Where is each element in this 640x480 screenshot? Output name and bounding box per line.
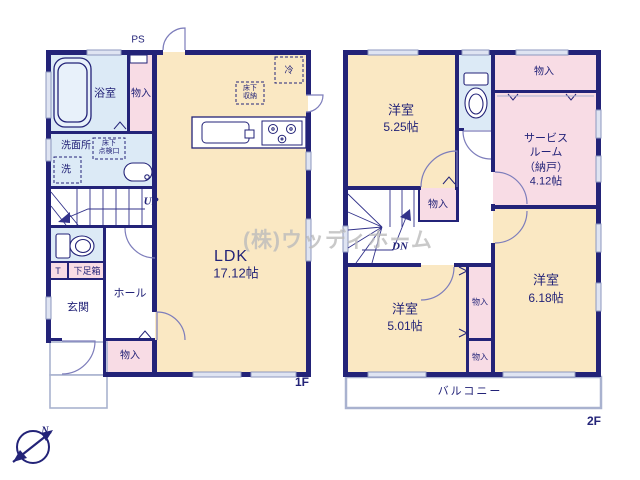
washbasin-icon <box>124 163 152 181</box>
bathtub-icon <box>54 58 91 127</box>
label-washer: 洗 <box>61 164 71 176</box>
label-storage-2f-topright: 物入 <box>534 66 554 78</box>
hall-area <box>106 227 155 340</box>
label-bathroom: 浴室 <box>94 88 116 101</box>
label-ldk-name: LDK <box>214 248 248 266</box>
compass-north-label: N <box>41 425 48 437</box>
label-toilet-t: T <box>55 266 61 276</box>
label-bedroom3-name: 洋室 <box>533 274 559 289</box>
toilet-2f-icon <box>464 73 488 118</box>
label-floor2: 2F <box>587 415 601 429</box>
floorplan-canvas: (株)ウッディホーム PS 浴室 物入 洗面所 床下 点検口 洗 UP LDK … <box>0 0 640 480</box>
label-up: UP <box>144 196 159 209</box>
label-storage-1f-top: 物入 <box>131 88 151 100</box>
door-ldk-side <box>306 95 323 112</box>
label-ps: PS <box>131 34 144 46</box>
ldk-area <box>155 52 308 374</box>
label-entrance: 玄関 <box>67 302 89 315</box>
door-kitchen-back <box>163 28 185 50</box>
toilet-1f-icon <box>56 234 94 258</box>
label-bedroom2-size: 5.01帖 <box>387 320 422 334</box>
kitchen-counter <box>192 117 306 148</box>
label-underfloor-hatch: 床下 点検口 <box>99 140 120 156</box>
label-storage-2f-stairs: 物入 <box>428 199 448 211</box>
ps-shaft <box>130 55 147 63</box>
label-storage-2f-low: 物入 <box>472 352 488 361</box>
label-storage-1f-bottom: 物入 <box>120 350 140 362</box>
label-washroom: 洗面所 <box>61 140 91 152</box>
label-bedroom2-name: 洋室 <box>392 303 418 318</box>
label-bedroom3-size: 6.18帖 <box>528 292 563 306</box>
hall-2f-area <box>457 130 493 265</box>
label-balcony: バルコニー <box>438 386 503 399</box>
label-fridge: 冷 <box>284 65 293 75</box>
label-dn: DN <box>392 241 408 254</box>
label-service-room: サービス ルーム （納戸） 4.12帖 <box>524 131 568 188</box>
label-shoe-box: 下足箱 <box>73 266 100 276</box>
label-storage-2f-mid: 物入 <box>472 297 488 306</box>
label-ldk-size: 17.12帖 <box>213 267 259 282</box>
label-hall: ホール <box>114 288 147 301</box>
label-bedroom1-size: 5.25帖 <box>383 121 418 135</box>
porch-steps <box>50 342 107 408</box>
label-bedroom1-name: 洋室 <box>388 104 414 119</box>
label-floor1: 1F <box>295 376 309 390</box>
label-underfloor-storage: 床下 収納 <box>243 85 257 101</box>
